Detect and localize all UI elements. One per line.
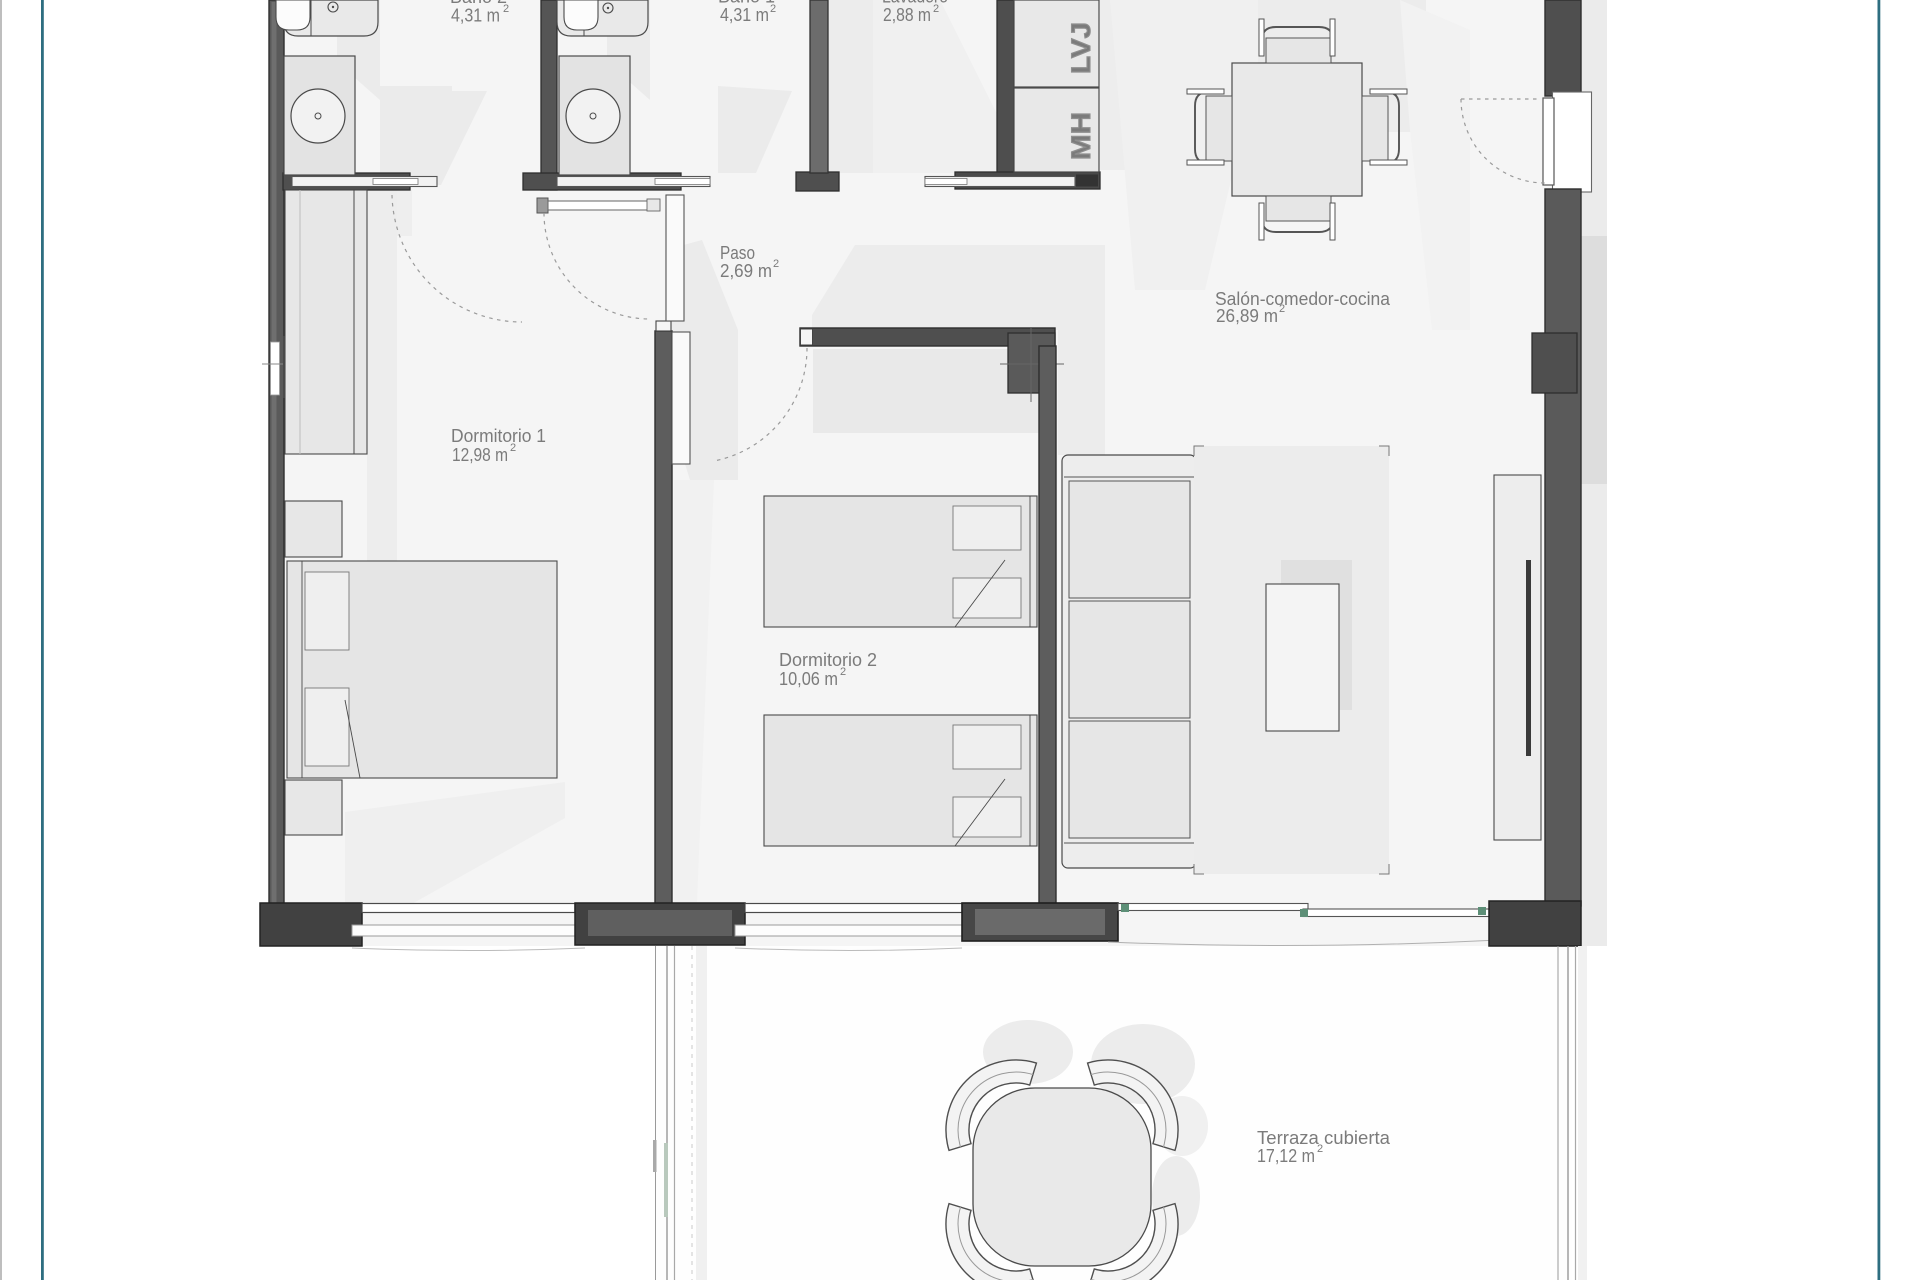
svg-text:2: 2: [510, 442, 516, 454]
svg-text:26,89 m: 26,89 m: [1216, 306, 1278, 326]
svg-text:2: 2: [770, 3, 776, 15]
svg-text:2: 2: [773, 258, 779, 270]
svg-text:2: 2: [503, 3, 509, 15]
svg-text:Paso: Paso: [720, 243, 755, 263]
svg-text:12,98 m: 12,98 m: [452, 445, 508, 465]
svg-text:Dormitorio 1: Dormitorio 1: [451, 426, 546, 446]
svg-text:Dormitorio 2: Dormitorio 2: [779, 650, 877, 670]
svg-text:Terraza cubierta: Terraza cubierta: [1257, 1128, 1391, 1148]
svg-text:2: 2: [1317, 1143, 1323, 1155]
svg-text:2: 2: [840, 666, 846, 678]
svg-text:LVJ: LVJ: [1066, 22, 1096, 74]
svg-text:2,69 m: 2,69 m: [720, 261, 772, 281]
svg-text:10,06 m: 10,06 m: [779, 669, 838, 689]
svg-text:4,31 m: 4,31 m: [451, 6, 500, 26]
svg-text:2,88 m: 2,88 m: [883, 5, 931, 25]
svg-text:4,31 m: 4,31 m: [720, 5, 769, 25]
svg-text:17,12 m: 17,12 m: [1257, 1146, 1315, 1166]
svg-text:2: 2: [1279, 303, 1285, 315]
svg-text:2: 2: [933, 3, 939, 15]
svg-text:MH: MH: [1066, 112, 1096, 160]
